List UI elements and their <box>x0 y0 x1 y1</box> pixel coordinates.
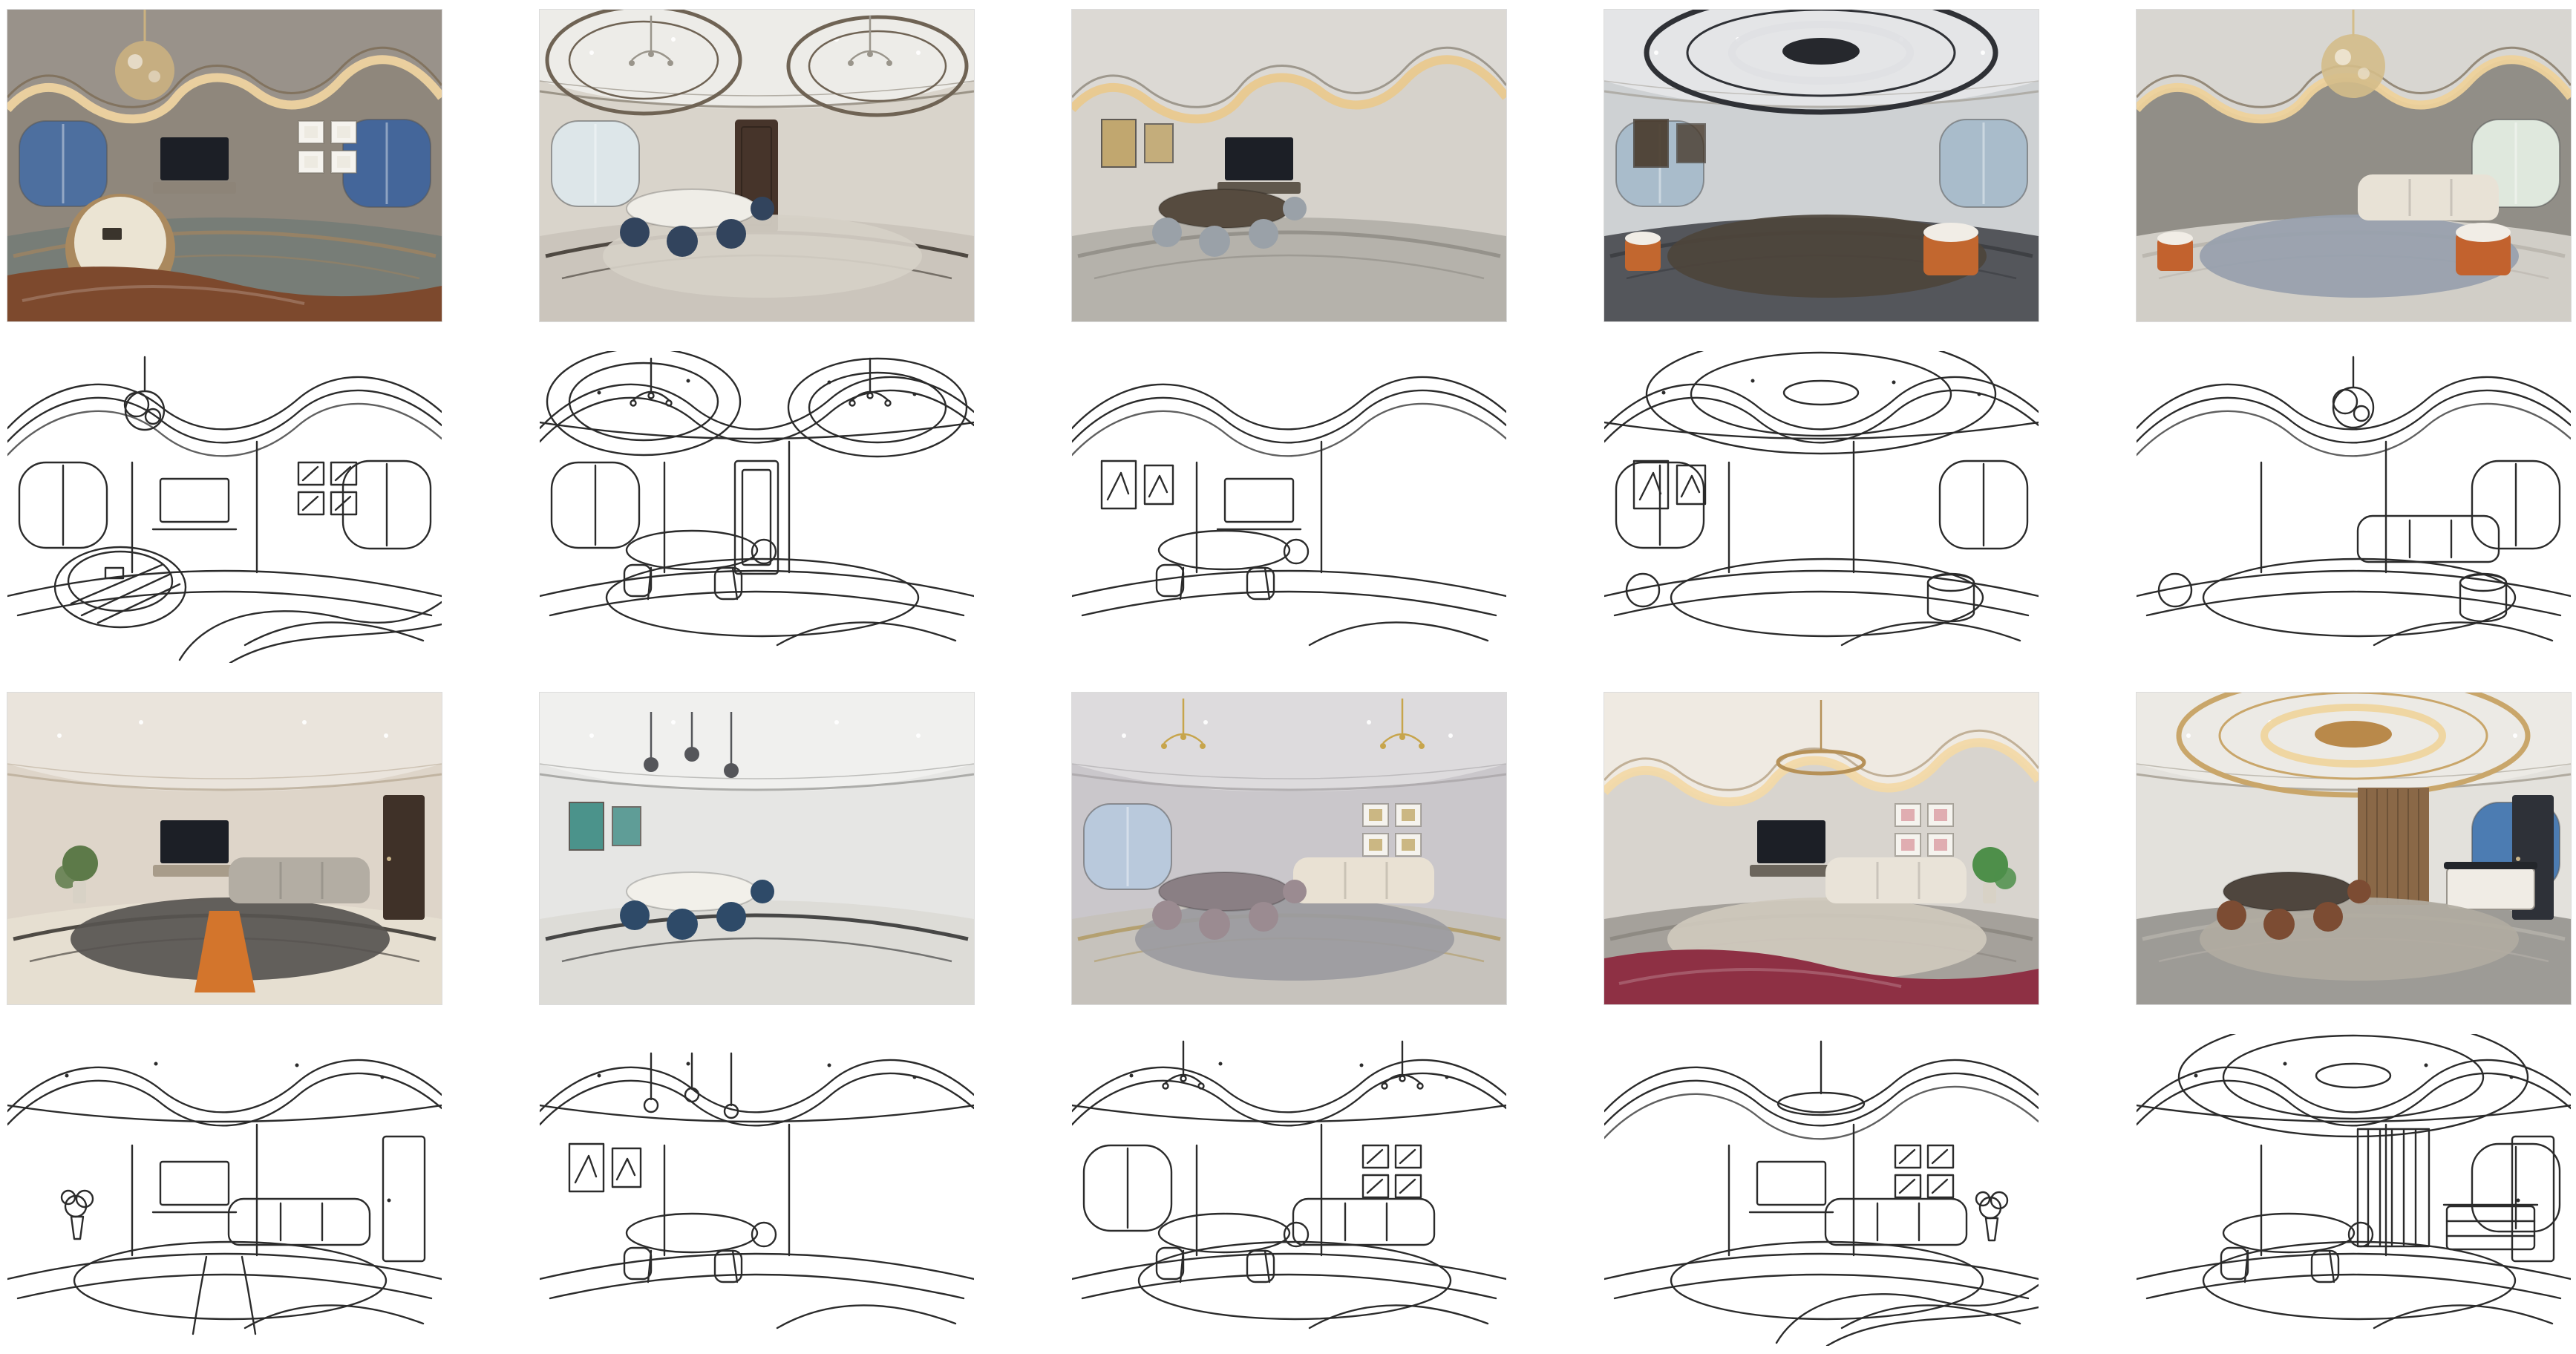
panorama-sketch-image <box>7 351 442 663</box>
pano-sketch-r2c5 <box>2137 1034 2571 1346</box>
panorama-sketch-image <box>2137 351 2571 663</box>
sideboard <box>2444 862 2537 909</box>
tv-screen <box>153 820 236 877</box>
panorama-sketch-image <box>1604 1034 2039 1346</box>
panorama-sketch-image <box>540 1034 974 1346</box>
panorama-photo-image <box>1072 693 1506 1004</box>
pano-sketch-r2c2 <box>540 1034 974 1346</box>
panorama-photo-image <box>7 10 442 321</box>
rug <box>1135 897 1454 981</box>
door-right <box>383 795 425 920</box>
sofa <box>1293 857 1434 903</box>
pano-photo-r1c1 <box>7 10 442 321</box>
panorama-photo-image <box>540 693 974 1004</box>
pano-photo-r2c3 <box>1072 693 1506 1004</box>
flat-ceiling <box>540 693 974 791</box>
window-right <box>1940 120 2027 207</box>
pano-sketch-r1c2 <box>540 351 974 663</box>
panorama-sketch-image <box>1604 351 2039 663</box>
panorama-sketch-grid <box>0 0 2576 1346</box>
pano-photo-r1c2 <box>540 10 974 321</box>
panorama-sketch-image <box>1072 351 1506 663</box>
sofa <box>1825 857 1967 903</box>
panorama-sketch-image <box>540 351 974 663</box>
panorama-sketch-image <box>7 1034 442 1346</box>
window-left <box>19 121 107 206</box>
tv-screen <box>153 137 236 194</box>
pano-sketch-r2c3 <box>1072 1034 1506 1346</box>
panorama-photo-image <box>1604 693 2039 1004</box>
pano-photo-r1c3 <box>1072 10 1506 321</box>
panorama-photo-image <box>7 693 442 1004</box>
window-left <box>552 121 639 206</box>
panorama-photo-image <box>540 10 974 321</box>
window-left <box>1084 804 1171 889</box>
panorama-photo-image <box>1072 10 1506 321</box>
pano-photo-r2c1 <box>7 693 442 1004</box>
panorama-photo-image <box>2137 693 2571 1004</box>
rug <box>2200 897 2519 981</box>
pano-sketch-r1c4 <box>1604 351 2039 663</box>
panorama-photo-image <box>2137 10 2571 321</box>
pano-sketch-r1c3 <box>1072 351 1506 663</box>
pano-photo-r2c2 <box>540 693 974 1004</box>
pano-sketch-r2c4 <box>1604 1034 2039 1346</box>
panorama-sketch-image <box>2137 1034 2571 1346</box>
tv-screen <box>1750 820 1833 877</box>
flat-ceiling <box>1072 693 1506 791</box>
sofa <box>229 857 370 903</box>
pano-photo-r1c5 <box>2137 10 2571 321</box>
rug <box>603 215 922 298</box>
pano-photo-r2c4 <box>1604 693 2039 1004</box>
pano-photo-r1c4 <box>1604 10 2039 321</box>
tv-screen <box>1217 137 1301 194</box>
pano-sketch-r1c1 <box>7 351 442 663</box>
panorama-sketch-image <box>1072 1034 1506 1346</box>
pano-sketch-r1c5 <box>2137 351 2571 663</box>
sofa <box>2358 174 2499 220</box>
pano-photo-r2c5 <box>2137 693 2571 1004</box>
pano-sketch-r2c1 <box>7 1034 442 1346</box>
panorama-photo-image <box>1604 10 2039 321</box>
flat-ceiling <box>7 693 442 791</box>
